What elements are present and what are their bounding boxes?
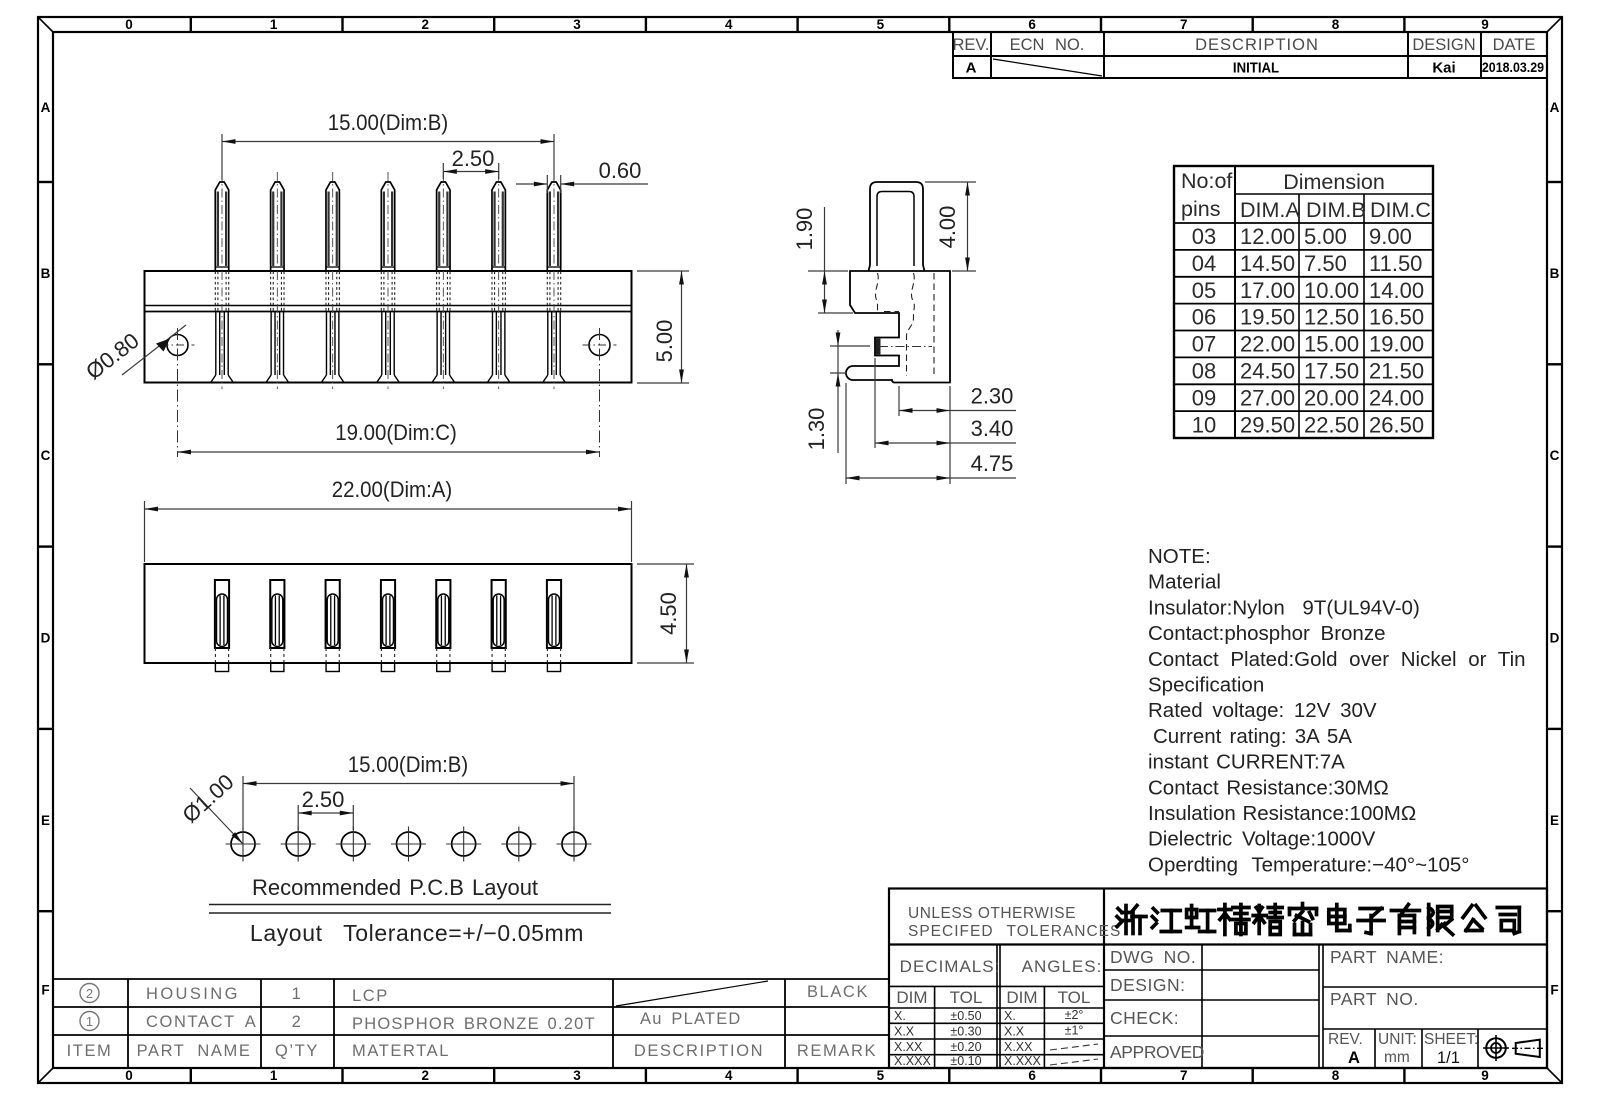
svg-text:2: 2 <box>86 986 93 1001</box>
svg-text:2: 2 <box>422 1068 430 1083</box>
svg-text:DESCRIPTION: DESCRIPTION <box>634 1042 764 1060</box>
svg-text:04: 04 <box>1192 251 1216 276</box>
svg-text:05: 05 <box>1192 278 1216 303</box>
svg-text:6: 6 <box>1028 1068 1036 1083</box>
svg-text:10.00: 10.00 <box>1304 278 1359 303</box>
svg-text:PART NO.: PART NO. <box>1330 989 1419 1009</box>
svg-text:1: 1 <box>86 1014 93 1029</box>
svg-text:Contact Resistance:30MΩ: Contact Resistance:30MΩ <box>1148 776 1389 799</box>
svg-text:DIM: DIM <box>1006 988 1037 1007</box>
svg-text:X.X: X.X <box>1004 1025 1025 1039</box>
svg-text:±0.50: ±0.50 <box>950 1009 981 1023</box>
svg-text:4: 4 <box>725 17 733 32</box>
svg-text:Contact Plated:Gold over Nicke: Contact Plated:Gold over Nickel or Tin <box>1148 648 1526 671</box>
svg-text:instant CURRENT:7A: instant CURRENT:7A <box>1148 751 1345 774</box>
svg-text:03: 03 <box>1192 224 1216 249</box>
svg-text:Insulator:Nylon 9T(UL94V-0): Insulator:Nylon 9T(UL94V-0) <box>1148 596 1420 619</box>
svg-text:07: 07 <box>1192 332 1216 357</box>
svg-text:TOL: TOL <box>950 988 983 1007</box>
svg-text:0: 0 <box>125 17 133 32</box>
svg-text:Recommended P.C.B Layout: Recommended P.C.B Layout <box>252 875 538 900</box>
svg-text:8: 8 <box>1332 17 1340 32</box>
svg-text:5: 5 <box>877 1068 885 1083</box>
svg-text:24.50: 24.50 <box>1240 359 1295 384</box>
svg-text:±0.30: ±0.30 <box>950 1025 981 1039</box>
svg-text:1: 1 <box>270 17 278 32</box>
svg-text:19.00(Dim:C): 19.00(Dim:C) <box>335 420 457 445</box>
svg-text:09: 09 <box>1192 385 1216 410</box>
svg-text:10: 10 <box>1192 412 1216 437</box>
svg-text:Dimension: Dimension <box>1283 170 1385 194</box>
svg-text:27.00: 27.00 <box>1240 385 1295 410</box>
svg-text:DESCRIPTION: DESCRIPTION <box>1195 36 1319 54</box>
svg-text:DESIGN:: DESIGN: <box>1110 975 1185 995</box>
svg-text:9: 9 <box>1481 1068 1489 1083</box>
svg-text:Material: Material <box>1148 571 1221 594</box>
svg-text:15.00(Dim:B): 15.00(Dim:B) <box>348 752 468 777</box>
svg-text:DIM: DIM <box>896 988 927 1007</box>
svg-text:X.XXX: X.XXX <box>894 1054 931 1068</box>
svg-text:21.50: 21.50 <box>1369 359 1424 384</box>
svg-text:PHOSPHOR BRONZE 0.20T: PHOSPHOR BRONZE 0.20T <box>352 1015 596 1033</box>
svg-text:22.00(Dim:A): 22.00(Dim:A) <box>332 477 452 502</box>
svg-text:NOTE:: NOTE: <box>1148 545 1211 568</box>
svg-text:±1°: ±1° <box>1065 1024 1084 1038</box>
svg-text:F: F <box>41 983 49 998</box>
svg-text:4: 4 <box>725 1068 733 1083</box>
svg-text:2.50: 2.50 <box>452 146 495 171</box>
svg-text:DWG NO.: DWG NO. <box>1110 947 1196 967</box>
svg-text:1.90: 1.90 <box>792 208 817 251</box>
svg-text:Ø0.80: Ø0.80 <box>81 328 144 385</box>
svg-text:Current rating: 3A 5A: Current rating: 3A 5A <box>1153 725 1352 748</box>
svg-text:12.00: 12.00 <box>1240 224 1295 249</box>
svg-text:Operdting Temperature:−40°~105: Operdting Temperature:−40°~105° <box>1148 853 1469 876</box>
svg-text:7.50: 7.50 <box>1304 251 1347 276</box>
svg-text:TOL: TOL <box>1058 988 1091 1007</box>
svg-text:Insulation Resistance:100MΩ: Insulation Resistance:100MΩ <box>1148 802 1416 825</box>
svg-text:14.00: 14.00 <box>1369 278 1424 303</box>
svg-text:7: 7 <box>1180 1068 1188 1083</box>
svg-text:D: D <box>1550 631 1560 646</box>
svg-text:1: 1 <box>270 1068 278 1083</box>
svg-text:9.00: 9.00 <box>1369 224 1412 249</box>
svg-text:4.50: 4.50 <box>656 592 681 635</box>
svg-text:17.00: 17.00 <box>1240 278 1295 303</box>
svg-text:0.60: 0.60 <box>599 158 642 183</box>
svg-text:DATE: DATE <box>1493 36 1536 54</box>
svg-text:SPECIFED TOLERANCES: SPECIFED TOLERANCES <box>908 923 1121 940</box>
svg-text:6: 6 <box>1028 17 1036 32</box>
svg-text:LCP: LCP <box>352 987 389 1005</box>
svg-text:15.00(Dim:B): 15.00(Dim:B) <box>328 110 448 135</box>
svg-text:22.00: 22.00 <box>1240 332 1295 357</box>
svg-text:Au PLATED: Au PLATED <box>640 1010 742 1028</box>
svg-text:X.: X. <box>1004 1009 1016 1023</box>
svg-text:2.50: 2.50 <box>302 787 345 812</box>
svg-text:APPROVED: APPROVED <box>1110 1042 1204 1062</box>
svg-text:SHEET:: SHEET: <box>1424 1031 1478 1048</box>
svg-text:B: B <box>41 266 51 281</box>
svg-text:MATERTAL: MATERTAL <box>352 1042 450 1060</box>
svg-text:2: 2 <box>292 1013 303 1031</box>
svg-text:PART NAME: PART NAME <box>137 1042 252 1060</box>
svg-text:12.50: 12.50 <box>1304 305 1359 330</box>
svg-text:CONTACT A: CONTACT A <box>146 1013 257 1031</box>
svg-text:14.50: 14.50 <box>1240 251 1295 276</box>
svg-text:26.50: 26.50 <box>1369 412 1424 437</box>
svg-text:Specification: Specification <box>1148 674 1264 697</box>
svg-text:mm: mm <box>1384 1049 1410 1066</box>
svg-text:20.00: 20.00 <box>1304 385 1359 410</box>
svg-text:X.XX: X.XX <box>1004 1040 1033 1054</box>
svg-text:±2°: ±2° <box>1065 1008 1084 1022</box>
svg-text:E: E <box>1550 813 1559 828</box>
svg-text:E: E <box>41 813 50 828</box>
svg-text:REV.: REV. <box>953 36 990 54</box>
svg-text:DIM.C: DIM.C <box>1370 198 1431 222</box>
svg-text:5.00: 5.00 <box>652 320 677 363</box>
svg-text:REV.: REV. <box>1328 1031 1363 1048</box>
svg-text:2.30: 2.30 <box>971 384 1014 409</box>
svg-text:UNLESS OTHERWISE: UNLESS OTHERWISE <box>908 905 1076 922</box>
svg-text:A: A <box>1348 1049 1360 1067</box>
svg-text:pins: pins <box>1181 197 1220 221</box>
svg-text:X.XX: X.XX <box>894 1040 923 1054</box>
svg-text:F: F <box>1550 983 1558 998</box>
svg-text:INITIAL: INITIAL <box>1233 59 1279 76</box>
svg-text:No:of: No:of <box>1181 169 1232 193</box>
svg-text:D: D <box>41 631 51 646</box>
svg-text:5: 5 <box>877 17 885 32</box>
svg-text:A: A <box>966 60 977 77</box>
svg-text:17.50: 17.50 <box>1304 359 1359 384</box>
svg-text:19.50: 19.50 <box>1240 305 1295 330</box>
svg-text:±0.10: ±0.10 <box>950 1054 981 1068</box>
svg-text:19.00: 19.00 <box>1369 332 1424 357</box>
svg-text:4.75: 4.75 <box>971 451 1014 476</box>
svg-text:Ø1.00: Ø1.00 <box>177 769 238 828</box>
svg-text:X.XXX: X.XXX <box>1004 1054 1041 1068</box>
svg-text:Rated voltage: 12V 30V: Rated voltage: 12V 30V <box>1148 699 1377 722</box>
svg-text:3.40: 3.40 <box>971 416 1014 441</box>
svg-text:1/1: 1/1 <box>1437 1049 1460 1067</box>
svg-text:A: A <box>1550 100 1560 115</box>
svg-text:ITEM: ITEM <box>67 1042 113 1060</box>
svg-text:1.30: 1.30 <box>804 408 829 451</box>
svg-text:±0.20: ±0.20 <box>950 1040 981 1054</box>
svg-text:DIM.B: DIM.B <box>1306 198 1366 222</box>
svg-text:B: B <box>1550 266 1560 281</box>
svg-text:2018.03.29: 2018.03.29 <box>1482 60 1544 76</box>
svg-text:DIM.A: DIM.A <box>1240 198 1300 222</box>
svg-text:4.00: 4.00 <box>935 206 960 249</box>
svg-text:Layout Tolerance=+/−0.05mm: Layout Tolerance=+/−0.05mm <box>250 920 584 946</box>
svg-text:06: 06 <box>1192 305 1216 330</box>
svg-text:0: 0 <box>125 1068 133 1083</box>
svg-text:Q’TY: Q’TY <box>275 1042 319 1060</box>
svg-text:X.X: X.X <box>894 1025 915 1039</box>
svg-text:16.50: 16.50 <box>1369 305 1424 330</box>
svg-text:C: C <box>41 448 51 463</box>
svg-text:08: 08 <box>1192 359 1216 384</box>
svg-text:9: 9 <box>1481 17 1489 32</box>
svg-text:HOUSING: HOUSING <box>146 985 240 1003</box>
svg-text:C: C <box>1550 448 1560 463</box>
svg-text:CHECK:: CHECK: <box>1110 1008 1179 1028</box>
svg-text:ANGLES:: ANGLES: <box>1022 957 1103 976</box>
svg-text:1: 1 <box>292 985 303 1003</box>
svg-text:Kai: Kai <box>1432 60 1455 77</box>
svg-text:11.50: 11.50 <box>1369 251 1422 276</box>
svg-text:Contact:phosphor Bronze: Contact:phosphor Bronze <box>1148 622 1385 645</box>
svg-text:3: 3 <box>573 17 581 32</box>
svg-text:REMARK: REMARK <box>797 1042 877 1060</box>
svg-text:DESIGN: DESIGN <box>1412 36 1475 54</box>
svg-text:PART NAME:: PART NAME: <box>1330 947 1444 967</box>
svg-text:Dielectric Voltage:1000V: Dielectric Voltage:1000V <box>1148 828 1376 851</box>
svg-text:29.50: 29.50 <box>1240 412 1295 437</box>
svg-text:UNIT:: UNIT: <box>1378 1031 1417 1048</box>
svg-text:7: 7 <box>1180 17 1188 32</box>
svg-text:8: 8 <box>1332 1068 1340 1083</box>
svg-text:22.50: 22.50 <box>1304 412 1359 437</box>
svg-text:2: 2 <box>422 17 430 32</box>
svg-text:15.00: 15.00 <box>1304 332 1359 357</box>
svg-text:5.00: 5.00 <box>1304 224 1347 249</box>
svg-text:A: A <box>41 100 51 115</box>
svg-text:ECN NO.: ECN NO. <box>1010 36 1085 54</box>
svg-text:3: 3 <box>573 1068 581 1083</box>
svg-text:BLACK: BLACK <box>807 983 869 1001</box>
svg-text:24.00: 24.00 <box>1369 385 1424 410</box>
svg-text:DECIMALS:: DECIMALS: <box>900 957 1001 976</box>
svg-text:X.: X. <box>894 1009 906 1023</box>
